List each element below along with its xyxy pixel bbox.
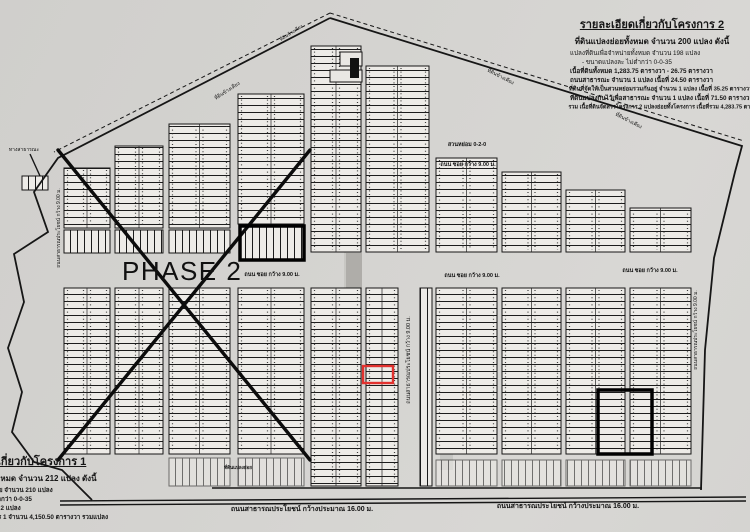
map-label: ถนนสาธารณประโยชน์ กว้างประมาณ 16.00 ม. xyxy=(497,501,639,510)
project2-subtitle: ที่ดินแปลงย่อยทั้งหมด จำนวน 200 แปลง ดัง… xyxy=(556,36,748,48)
map-label: ที่ดินแปลงย่อย xyxy=(224,464,252,470)
map-label: ถนน ซอย กว้าง 9.00 ม. xyxy=(440,160,496,168)
project2-line: - ขนาดแปลงละ ไม่ต่ำกว่า 0-0-35 xyxy=(556,58,748,67)
project2-line: ถนนสาธารณะ จำนวน 1 แปลง เนื้อที่ 24.50 ต… xyxy=(556,76,748,85)
map-label: ถนน ซอย กว้าง 9.00 ม. xyxy=(444,271,500,279)
project1-line: ที่ดินแปลงอื่น จำนวน 2 แปลง xyxy=(0,504,162,513)
road-edge-line xyxy=(60,497,746,501)
map-label: ถนน ซอย กว้าง 9.00 ม. xyxy=(244,270,300,278)
project1-subtitle: ที่ดินแปลงย่อยทั้งหมด จำนวน 212 แปลง ดัง… xyxy=(0,473,162,485)
project2-details-block: รายละเอียดเกี่ยวกับโครงการ 2 ที่ดินแปลงย… xyxy=(556,18,748,112)
project2-line: เนื้อที่ดินทั้งหมด 1,283.75 ตารางวา - 26… xyxy=(556,67,748,76)
road-edge-line xyxy=(30,154,40,176)
lot-block xyxy=(169,458,230,486)
project2-line: รวม เนื้อที่ดินจัดสรรโครงการ 2 แปลงย่อยท… xyxy=(556,103,725,111)
scan-smudge xyxy=(346,253,362,289)
project1-line: แปลงที่ดินเพื่อจำหน่าย จำนวน 210 แปลง xyxy=(0,486,162,495)
lot-block xyxy=(238,458,304,486)
map-label: ถนนสาธารณประโยชน์ กว้าง 9.00 ม. xyxy=(404,316,412,404)
scanned-subdivision-plan: ถนนสาธารณประโยชน์ กว้างประมาณ 16.00 ม.ถน… xyxy=(0,0,750,532)
map-label: ทางสาธารณะ xyxy=(9,147,40,153)
phase-2-label: PHASE 2 xyxy=(122,256,242,287)
map-label: ที่ดินข้างเคียง xyxy=(213,80,242,102)
project1-line: - ขนาดแปลงละ ไม่ต่ำกว่า 0-0-35 xyxy=(0,495,162,504)
map-label: ถนนสาธารณประโยชน์ กว้าง 9.00 ม. xyxy=(692,290,699,370)
lot-block xyxy=(566,460,625,486)
road-edge-line xyxy=(60,501,746,505)
plan-mark xyxy=(350,58,359,78)
project1-details-block: รายละเอียดเกี่ยวกับโครงการ 1 ที่ดินแปลงย… xyxy=(0,455,162,522)
map-label: ที่ดินข้างเคียง xyxy=(486,67,516,87)
project1-line: รวม เนื้อที่ทั้งโครงการ 1 จำนวน 4,150.50… xyxy=(0,513,162,522)
lot-block xyxy=(436,460,497,486)
lot-block xyxy=(240,226,304,260)
project1-title: รายละเอียดเกี่ยวกับโครงการ 1 xyxy=(0,455,162,471)
lot-block xyxy=(64,230,110,253)
map-label: สวนหย่อม 0-2-0 xyxy=(448,141,486,148)
map-label: ถนนสาธารณประโยชน์ กว้างประมาณ 16.00 ม. xyxy=(231,504,373,513)
project2-title: รายละเอียดเกี่ยวกับโครงการ 2 xyxy=(556,18,748,34)
project2-line: แปลงที่ดินเพื่อจำหน่ายทั้งหมด จำนวน 198 … xyxy=(556,49,748,58)
lot-block xyxy=(630,460,691,486)
lot-block xyxy=(420,288,432,486)
lot-block xyxy=(502,460,561,486)
map-label: ถนนสาธารณประโยชน์ กว้าง 9.00 ม. xyxy=(55,188,62,268)
lot-block xyxy=(169,230,230,253)
project2-line: ที่ดินที่จัดให้เป็นสวนหย่อมรวมกันอยู่ จำ… xyxy=(556,85,733,93)
map-label: ถนน ซอย กว้าง 9.00 ม. xyxy=(622,266,678,274)
project2-line: ที่ดินแปลงกันไว้เพื่อสาธารณะ จำนวน 1 แปล… xyxy=(556,94,748,103)
